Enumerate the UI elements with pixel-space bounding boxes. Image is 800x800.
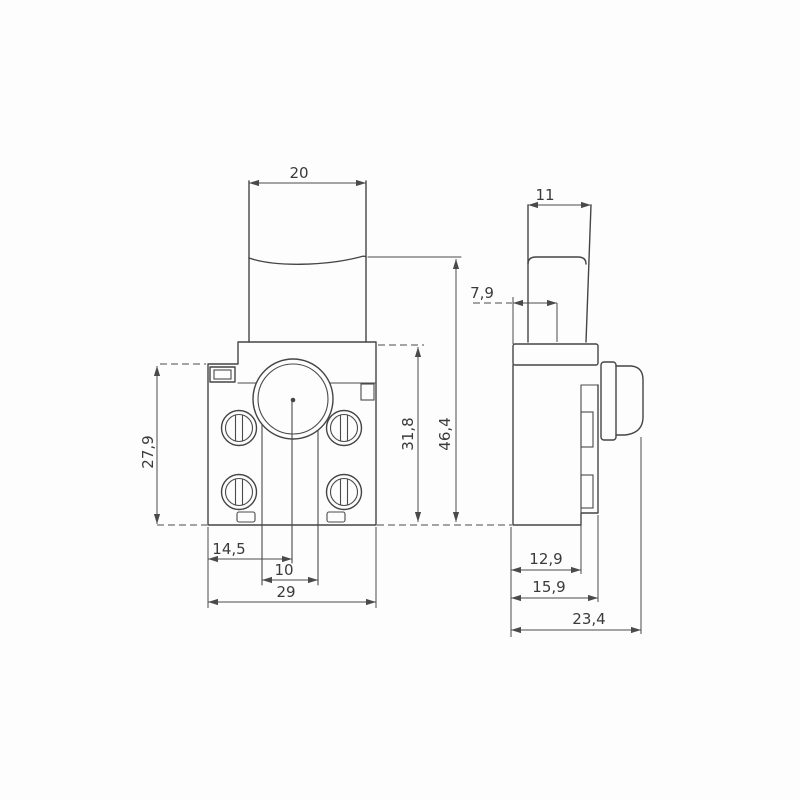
dim-label-total-height: 46,4	[436, 417, 454, 450]
terminal-side-upper	[581, 412, 593, 447]
trigger-switch-dimension-drawing: 20 27,9 31,8 46,4 14,5	[0, 0, 800, 800]
terminal-side-lower	[581, 475, 593, 508]
hole-center-mark	[291, 398, 296, 403]
trigger-outline-side	[528, 205, 591, 342]
dimensions: 20 27,9 31,8 46,4 14,5	[139, 164, 641, 637]
dim-label-hole-offset: 14,5	[212, 540, 245, 558]
dim-body-width: 29	[208, 583, 376, 602]
screw	[327, 411, 362, 446]
dim-label-slot-width: 10	[274, 561, 293, 579]
dim-label-inner-depth: 12,9	[529, 550, 562, 568]
side-bottom-extensions	[511, 437, 641, 637]
dim-trigger-depth: 11	[528, 186, 591, 205]
screw	[222, 411, 257, 446]
dim-label-trigger-depth: 11	[535, 186, 554, 204]
dim-label-trigger-width: 20	[289, 164, 308, 182]
side-slot-right	[361, 384, 374, 400]
dim-label-body-height: 31,8	[399, 417, 417, 450]
body-outline-side	[513, 365, 598, 525]
dim-inner-depth: 12,9	[511, 550, 581, 570]
front-view	[208, 181, 376, 585]
technical-drawing-canvas: 20 27,9 31,8 46,4 14,5	[0, 0, 800, 800]
trigger-collar-line	[528, 257, 586, 264]
terminal-top-left-inner	[214, 370, 231, 379]
dim-hole-offset: 14,5	[208, 540, 292, 559]
side-view	[513, 205, 643, 525]
trigger-concave-curve	[249, 256, 366, 264]
dim-trigger-width: 20	[249, 164, 366, 183]
dim-label-height-left: 27,9	[139, 435, 157, 468]
wire-port-right	[327, 512, 345, 522]
lock-button-cap	[616, 366, 643, 435]
mounting-flange	[513, 344, 598, 365]
dim-body-height: 31,8	[378, 345, 424, 522]
dim-label-body-width: 29	[276, 583, 295, 601]
screw	[222, 475, 257, 510]
body-inner-edge	[581, 385, 598, 513]
wire-port-left	[237, 512, 255, 522]
dim-label-total-depth: 23,4	[572, 610, 605, 628]
dim-slot-width: 10	[262, 561, 318, 580]
screw	[327, 475, 362, 510]
dim-trigger-offset: 7,9	[470, 284, 557, 344]
dim-total-height: 46,4	[368, 257, 461, 522]
dim-height-left: 27,9	[139, 364, 206, 524]
lock-button-stem	[601, 362, 616, 440]
dim-label-trigger-offset: 7,9	[470, 284, 494, 302]
dim-body-depth: 15,9	[511, 578, 598, 598]
dim-total-depth: 23,4	[511, 610, 641, 630]
dim-label-body-depth: 15,9	[532, 578, 565, 596]
